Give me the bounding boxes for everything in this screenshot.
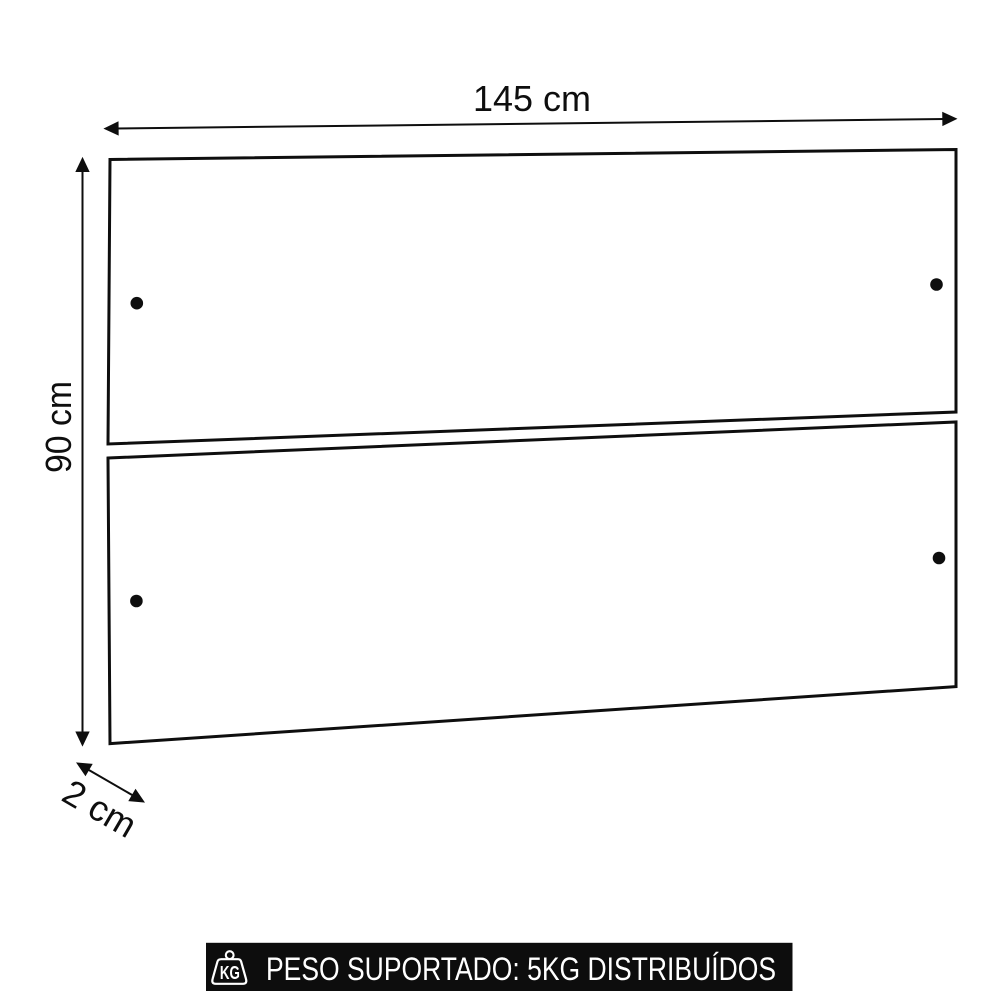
svg-text:KG: KG [220,963,240,983]
svg-text:90 cm: 90 cm [38,381,79,473]
svg-text:PESO SUPORTADO: 5KG DISTRIBUÍD: PESO SUPORTADO: 5KG DISTRIBUÍDOS [266,951,776,987]
svg-text:145 cm: 145 cm [473,78,591,119]
